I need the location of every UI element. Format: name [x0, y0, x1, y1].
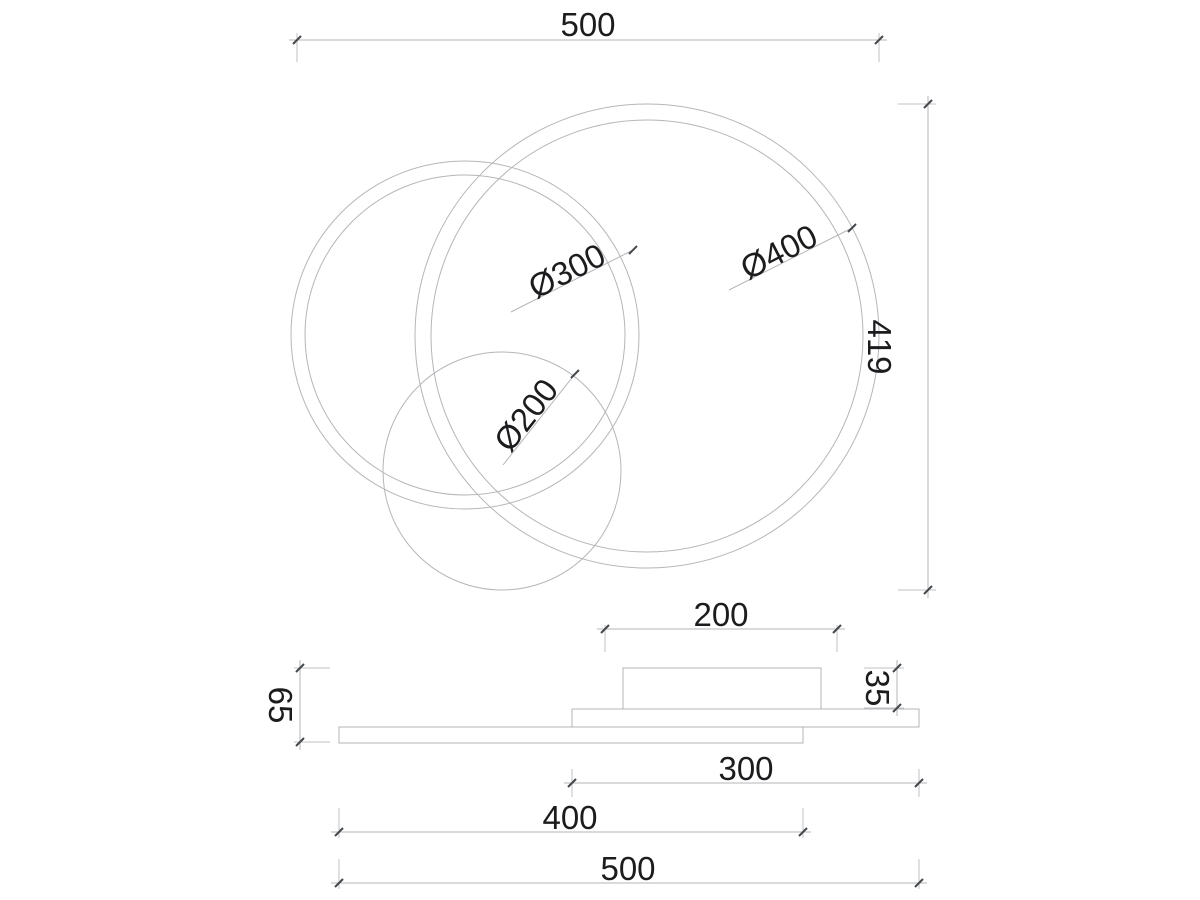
leader-tick	[629, 246, 637, 254]
dim-label-inner-plate-width: 300	[718, 750, 773, 787]
dim-label-ring-400: Ø400	[734, 217, 823, 287]
dim-label-overall-width-bottom: 500	[600, 850, 655, 887]
dim-label-overall-width-top: 500	[560, 6, 615, 43]
dim-label-canopy-width: 200	[693, 596, 748, 633]
dim-label-canopy-height: 35	[859, 670, 896, 707]
technical-drawing-page: 500 419 Ø300 Ø400 Ø200 20	[0, 0, 1200, 900]
dim-label-ring-200: Ø200	[487, 372, 566, 458]
dim-total-height: 65	[262, 660, 330, 750]
dim-canopy-width: 200	[597, 596, 845, 652]
ring-400-inner-circle	[431, 120, 863, 552]
ring-300-outer-circle	[291, 161, 639, 509]
side-view	[339, 668, 919, 743]
dimension-drawing-canvas: 500 419 Ø300 Ø400 Ø200 20	[0, 0, 1200, 900]
dim-inner-plate-width: 300	[564, 750, 927, 797]
dim-canopy-height: 35	[859, 660, 904, 716]
dim-label-total-height: 65	[262, 687, 299, 724]
leader-ring-400: Ø400	[729, 217, 856, 290]
ring-300-inner-circle	[305, 175, 625, 495]
dim-label-ring-300: Ø300	[522, 236, 611, 306]
dim-top-overall-height: 419	[861, 96, 936, 598]
inner-plate-outline	[572, 709, 919, 727]
canopy-outline	[623, 668, 821, 709]
dim-label-overall-height: 419	[861, 319, 898, 374]
dim-label-base-plate-width: 400	[542, 799, 597, 836]
ring-400-outer-circle	[415, 104, 879, 568]
leader-ring-300: Ø300	[511, 236, 637, 312]
dim-base-plate-width: 400	[331, 799, 811, 838]
top-view	[291, 104, 879, 590]
ring-200-circle	[383, 352, 621, 590]
leader-ring-200: Ø200	[487, 370, 579, 465]
leader-tick	[848, 224, 856, 232]
dim-side-overall-width: 500	[331, 850, 927, 889]
base-plate-outline	[339, 727, 803, 743]
dim-top-overall-width: 500	[289, 6, 887, 62]
